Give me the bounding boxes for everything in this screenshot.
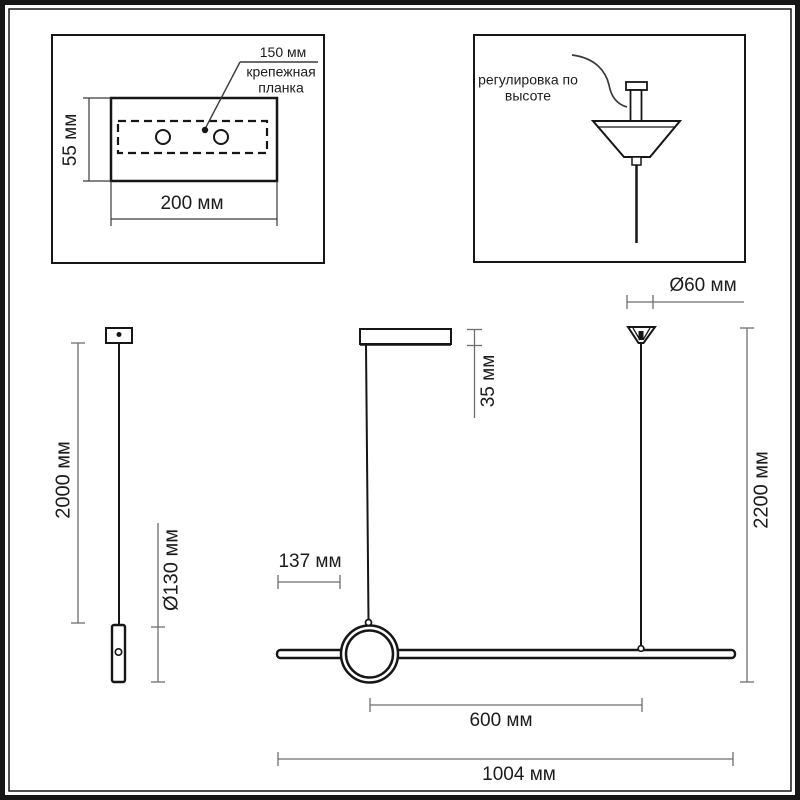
dimension-diagram: 150 мм крепежная планка 55 мм 200 мм рег…	[0, 0, 800, 800]
left-cord-connector	[366, 620, 372, 626]
dim-label-137mm: 137 мм	[278, 552, 341, 572]
diagram-linework	[0, 0, 800, 800]
dim-label-150mm: 150 мм	[260, 45, 307, 61]
dim-label-600mm: 600 мм	[469, 711, 532, 731]
height-adjustment-label: регулировка по высоте	[475, 72, 581, 103]
dim-label-130mm: Ø130 мм	[162, 529, 183, 611]
hanger-stem	[639, 331, 644, 340]
left-cord	[366, 345, 369, 620]
dim-label-200mm: 200 мм	[160, 194, 223, 214]
mount-hole-left	[156, 130, 170, 144]
plate-outline	[111, 98, 277, 181]
height-adjustment-panel	[474, 35, 745, 262]
dim-137	[278, 575, 340, 589]
ring-outer	[341, 626, 398, 683]
ceiling-plate	[360, 329, 451, 344]
canopy-neck	[632, 157, 641, 165]
dim-label-55mm: 55 мм	[61, 114, 81, 167]
stud-stem	[631, 90, 642, 123]
dim-label-2000mm: 2000 мм	[54, 441, 75, 519]
right-cord-connector	[638, 646, 644, 652]
bracket-label: крепежная планка	[234, 64, 328, 95]
leader-dot	[202, 127, 208, 133]
suspension-side-view	[71, 328, 165, 682]
stud-cap	[626, 82, 647, 90]
dim-label-60mm: Ø60 мм	[669, 276, 736, 296]
dim-label-1004mm: 1004 мм	[482, 765, 556, 785]
dim-label-2200mm: 2200 мм	[752, 451, 773, 529]
hanger-detail	[627, 295, 754, 682]
dim-55	[83, 98, 111, 181]
dim-label-35mm: 35 мм	[479, 355, 499, 408]
fixture-front-view	[277, 329, 735, 766]
dim-60	[627, 295, 744, 309]
mount-hole-right	[214, 130, 228, 144]
